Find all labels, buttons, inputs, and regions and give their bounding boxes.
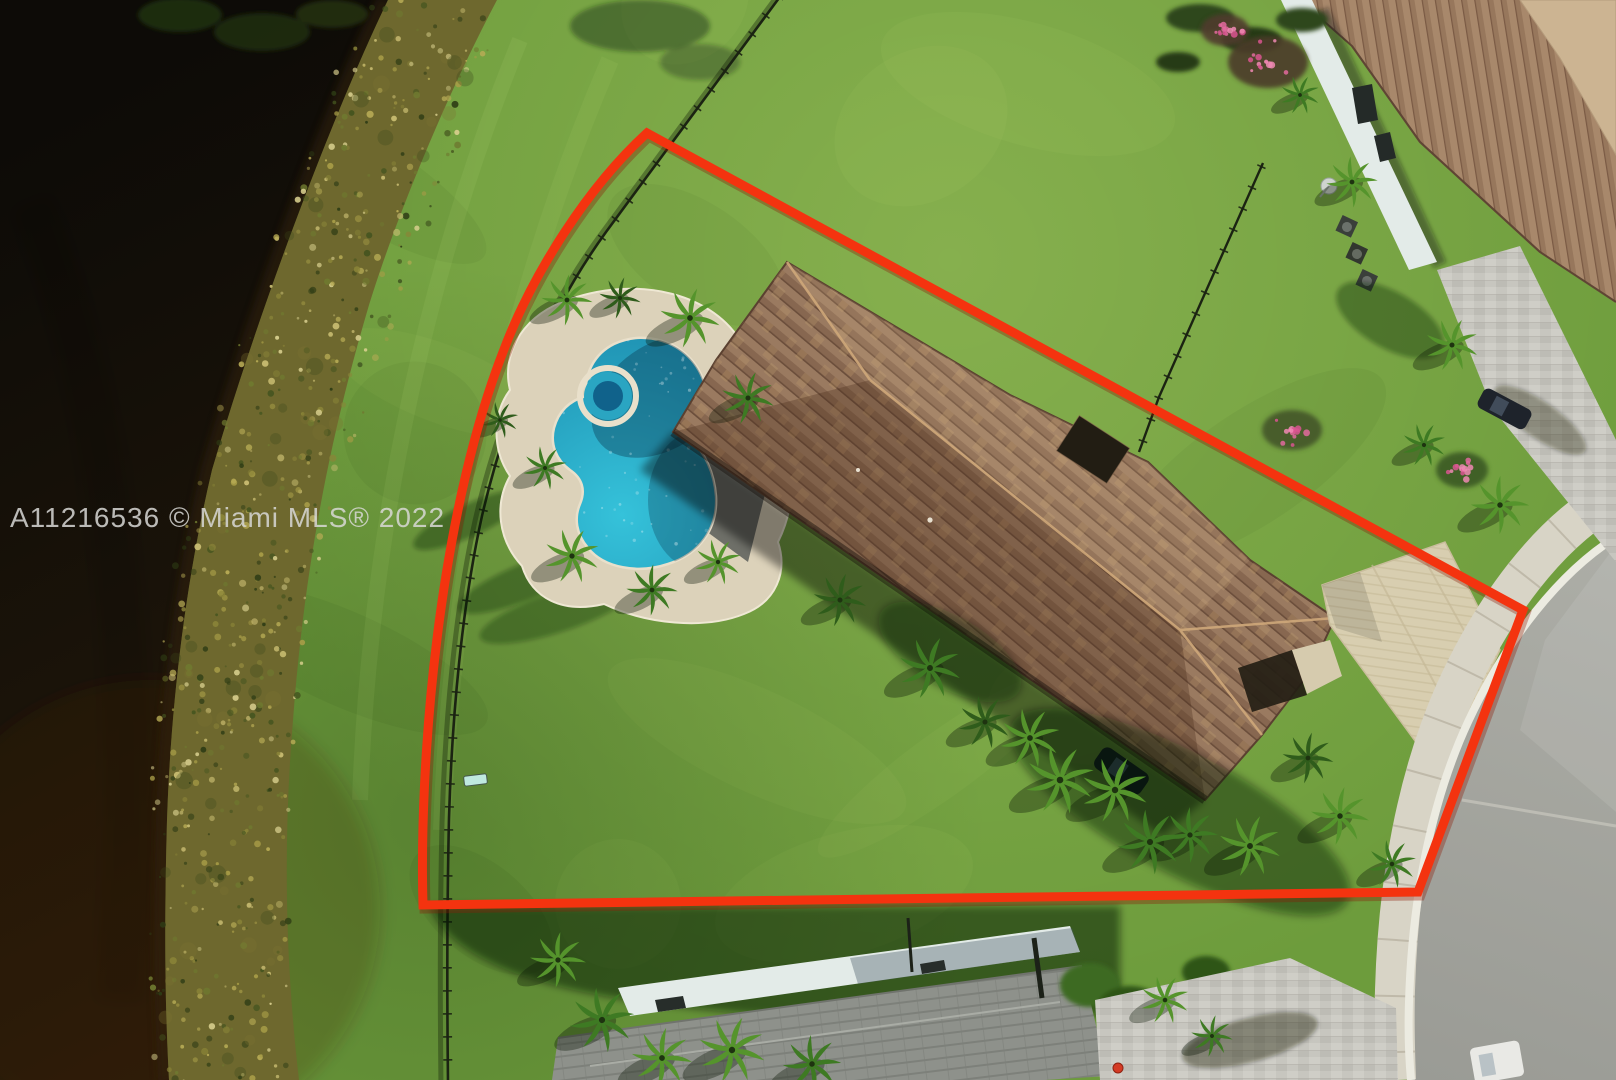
reed-speckle (241, 636, 246, 641)
reed-speckle (209, 544, 216, 551)
reed-speckle (327, 163, 333, 169)
reed-clump (234, 1067, 246, 1079)
reed-clump (180, 942, 197, 959)
reed-speckle (175, 1071, 178, 1074)
reed-speckle (342, 114, 348, 120)
reed-speckle (308, 475, 311, 478)
reed-speckle (230, 810, 233, 813)
reed-speckle (194, 543, 201, 550)
reed-speckle (150, 776, 155, 781)
reed-speckle (267, 973, 271, 977)
reed-speckle (225, 465, 227, 467)
reed-speckle (340, 125, 343, 128)
reed-speckle (392, 167, 397, 172)
reed-speckle (263, 351, 269, 357)
reed-speckle (274, 768, 279, 773)
reed-speckle (325, 354, 331, 360)
reed-speckle (398, 279, 402, 283)
water-sparkle (630, 522, 633, 525)
reed-speckle (150, 985, 156, 991)
reed-speckle (309, 244, 316, 251)
reed-speckle (181, 1017, 186, 1022)
reed-speckle (210, 570, 216, 576)
reed-speckle (191, 906, 198, 913)
reed-speckle (338, 380, 341, 383)
water-sparkle (661, 367, 663, 369)
reed-speckle (333, 398, 339, 404)
reed-speckle (257, 561, 261, 565)
reed-speckle (283, 345, 285, 347)
reed-speckle (286, 808, 290, 812)
reed-speckle (298, 455, 302, 459)
reed-speckle (247, 432, 252, 437)
reed-speckle (402, 202, 405, 205)
reed-speckle (193, 1057, 198, 1062)
reed-speckle (429, 205, 431, 207)
reed-speckle (251, 906, 253, 908)
reed-speckle (281, 477, 285, 481)
reed-speckle (276, 294, 281, 299)
reed-speckle (262, 592, 264, 594)
fence-post (454, 669, 463, 670)
fence-post (456, 646, 465, 647)
reed-speckle (396, 10, 403, 17)
water-sparkle (705, 529, 709, 533)
reed-speckle (474, 47, 479, 52)
reed-clump (250, 664, 263, 677)
reed-speckle (317, 557, 321, 561)
reed-speckle (180, 979, 185, 984)
reed-speckle (197, 674, 204, 681)
water-sparkle (682, 356, 685, 359)
water-sparkle (648, 489, 650, 491)
reed-speckle (209, 816, 215, 822)
reed-speckle (284, 577, 290, 583)
reed-clump (176, 772, 193, 789)
reed-speckle (232, 986, 237, 991)
water-sparkle (636, 491, 639, 494)
reed-speckle (426, 221, 432, 227)
reed-clump (248, 685, 261, 698)
flower-dot (1218, 32, 1222, 36)
reed-speckle (169, 674, 176, 681)
water-sparkle (665, 377, 668, 380)
reed-speckle (162, 989, 165, 992)
reed-speckle (332, 220, 335, 223)
reed-speckle (480, 51, 486, 57)
reed-speckle (357, 192, 363, 198)
reed-speckle (249, 381, 254, 386)
reed-speckle (231, 922, 237, 928)
reed-speckle (329, 144, 335, 150)
water-sparkle (623, 519, 625, 521)
reed-speckle (352, 330, 355, 333)
reed-clump (195, 873, 206, 884)
reed-speckle (157, 990, 159, 992)
reed-speckle (414, 226, 419, 231)
reed-speckle (229, 644, 232, 647)
reed-speckle (149, 933, 152, 936)
reed-speckle (235, 882, 241, 888)
reed-clump (300, 412, 312, 424)
reed-speckle (186, 536, 191, 541)
reed-speckle (317, 420, 320, 423)
reed-speckle (214, 723, 220, 729)
reed-speckle (426, 32, 431, 37)
reed-clump (273, 946, 283, 956)
reed-speckle (304, 620, 308, 624)
reed-speckle (317, 213, 321, 217)
reed-speckle (414, 171, 418, 175)
reed-speckle (199, 691, 205, 697)
reed-speckle (353, 68, 358, 73)
reed-speckle (354, 258, 357, 261)
reed-speckle (431, 44, 435, 48)
reed-clump (226, 681, 241, 696)
reed-speckle (408, 261, 412, 265)
reed-speckle (209, 777, 215, 783)
reed-speckle (258, 354, 261, 357)
reed-speckle (268, 720, 273, 725)
reed-speckle (304, 597, 307, 600)
reed-speckle (181, 607, 185, 611)
reed-speckle (276, 622, 280, 626)
reed-speckle (223, 582, 228, 587)
reed-speckle (194, 969, 198, 973)
reed-speckle (331, 359, 336, 364)
reed-speckle (266, 847, 270, 851)
reed-speckle (277, 454, 284, 461)
reed-speckle (213, 621, 219, 627)
reed-speckle (330, 388, 333, 391)
reed-speckle (296, 230, 300, 234)
reed-speckle (369, 5, 375, 11)
bench (463, 774, 487, 787)
reed-speckle (213, 762, 218, 767)
water-sparkle (649, 415, 651, 417)
reed-speckle (426, 66, 429, 69)
reed-speckle (334, 111, 339, 116)
reed-speckle (365, 269, 367, 271)
flower-dot (1214, 31, 1217, 34)
reed-speckle (267, 1048, 270, 1051)
reed-speckle (333, 70, 339, 76)
reed-speckle (295, 197, 301, 203)
reed-speckle (201, 860, 207, 866)
reed-speckle (245, 999, 252, 1006)
water-sparkle (683, 366, 686, 369)
reed-speckle (280, 375, 285, 380)
reed-speckle (364, 250, 371, 257)
reed-speckle (413, 155, 416, 158)
reed-clump (306, 358, 323, 375)
reed-clump (298, 346, 311, 359)
reed-clump (241, 353, 253, 365)
reed-speckle (390, 124, 392, 126)
fence-post (447, 761, 456, 762)
reed-speckle (421, 147, 424, 150)
reed-speckle (225, 665, 227, 667)
reed-speckle (438, 48, 444, 54)
reed-speckle (309, 157, 312, 160)
reed-speckle (214, 634, 221, 641)
fence-post (452, 692, 461, 693)
reed-speckle (381, 176, 385, 180)
flower-dot (1227, 28, 1233, 34)
reed-speckle (349, 110, 355, 116)
reed-speckle (341, 337, 346, 342)
water-sparkle (624, 472, 626, 474)
reed-speckle (406, 232, 412, 238)
reed-speckle (185, 1008, 190, 1013)
reed-speckle (281, 594, 285, 598)
reed-speckle (280, 486, 285, 491)
reed-speckle (270, 404, 276, 410)
reed-speckle (444, 130, 450, 136)
reed-speckle (256, 406, 260, 410)
reed-speckle (452, 101, 459, 108)
reed-speckle (393, 67, 397, 71)
reed-speckle (324, 279, 330, 285)
reed-speckle (271, 540, 277, 546)
reed-clump (184, 669, 193, 678)
reed-speckle (239, 463, 244, 468)
reed-speckle (334, 181, 339, 186)
reed-speckle (306, 449, 312, 455)
reed-speckle (303, 195, 309, 201)
reed-clump (278, 403, 287, 412)
water-sparkle (651, 523, 653, 525)
reed-speckle (305, 455, 311, 461)
reed-speckle (250, 704, 257, 711)
reed-speckle (285, 252, 288, 255)
roof-vent (856, 468, 860, 472)
water-sparkle (688, 389, 691, 392)
reed-speckle (326, 175, 332, 181)
reed-clump (456, 69, 473, 86)
flower-dot (1465, 458, 1471, 464)
fire-hydrant (1113, 1063, 1123, 1073)
reed-speckle (262, 623, 266, 627)
reed-speckle (306, 259, 310, 263)
reed-speckle (297, 317, 300, 320)
reed-speckle (343, 429, 346, 432)
reed-speckle (160, 922, 166, 928)
reed-speckle (222, 1064, 224, 1066)
flower-dot (1289, 429, 1293, 433)
reed-speckle (195, 959, 197, 961)
reed-speckle (374, 254, 381, 261)
reed-speckle (289, 498, 291, 500)
reed-speckle (249, 825, 253, 829)
reed-speckle (281, 835, 285, 839)
reed-speckle (180, 1045, 184, 1049)
reed-speckle (268, 629, 273, 634)
reed-speckle (233, 786, 239, 792)
reed-speckle (196, 731, 199, 734)
reed-speckle (330, 282, 334, 286)
reed-speckle (396, 36, 401, 41)
flower-dot (1280, 441, 1285, 446)
reed-speckle (460, 8, 465, 13)
reed-speckle (363, 239, 370, 246)
water-sparkle (645, 352, 647, 354)
reed-speckle (295, 487, 301, 493)
reed-speckle (172, 1000, 176, 1004)
reed-speckle (288, 597, 292, 601)
reed-speckle (225, 570, 229, 574)
reed-speckle (299, 368, 303, 372)
reed-speckle (300, 640, 306, 646)
flower-dot (1255, 54, 1261, 60)
reed-speckle (175, 853, 177, 855)
reed-speckle (277, 794, 280, 797)
reed-speckle (269, 736, 274, 741)
water-sparkle (611, 436, 614, 439)
reed-speckle (201, 747, 207, 753)
reed-speckle (197, 988, 203, 994)
reed-speckle (172, 562, 179, 569)
reed-speckle (198, 947, 202, 951)
reed-speckle (474, 56, 477, 59)
reed-speckle (262, 994, 265, 997)
reed-speckle (309, 151, 314, 156)
reed-speckle (347, 436, 353, 442)
reed-speckle (279, 672, 282, 675)
reed-clump (205, 798, 216, 809)
reed-speckle (393, 107, 395, 109)
reed-speckle (170, 750, 176, 756)
reed-speckle (310, 287, 317, 294)
reed-speckle (452, 18, 454, 20)
reed-speckle (248, 876, 253, 881)
reed-speckle (313, 380, 315, 382)
reed-speckle (203, 646, 208, 651)
reed-speckle (254, 974, 258, 978)
reed-clump (170, 653, 181, 664)
reed-speckle (310, 231, 316, 237)
reed-speckle (157, 716, 163, 722)
reed-speckle (437, 181, 440, 184)
flower-dot (1462, 466, 1468, 472)
reed-speckle (435, 114, 437, 116)
reed-speckle (170, 907, 172, 909)
reed-speckle (277, 752, 281, 756)
reed-speckle (176, 1003, 179, 1006)
reed-speckle (304, 320, 307, 323)
reed-speckle (203, 988, 210, 995)
flower-dot (1284, 429, 1289, 434)
reed-speckle (268, 788, 272, 792)
water-sparkle (693, 378, 695, 380)
reed-speckle (259, 738, 265, 744)
reed-speckle (410, 181, 412, 183)
reed-speckle (275, 336, 279, 340)
reed-speckle (217, 452, 222, 457)
reed-speckle (403, 108, 408, 113)
reed-speckle (263, 329, 268, 334)
reed-speckle (365, 121, 368, 124)
reed-speckle (382, 6, 388, 12)
fence-post (448, 738, 457, 739)
reed-speckle (172, 826, 178, 832)
reed-speckle (416, 29, 419, 32)
reed-speckle (280, 292, 283, 295)
reed-speckle (338, 121, 341, 124)
reed-speckle (185, 635, 190, 640)
reed-speckle (316, 271, 320, 275)
water-sparkle (635, 478, 638, 481)
reed-speckle (234, 670, 240, 676)
reed-speckle (232, 931, 234, 933)
roof-vent (927, 517, 932, 522)
reed-speckle (262, 1011, 269, 1018)
water-sparkle (633, 368, 636, 371)
reed-speckle (362, 278, 369, 285)
reed-speckle (273, 350, 277, 354)
reed-speckle (348, 92, 353, 97)
reed-speckle (385, 337, 389, 341)
reed-clump (378, 130, 394, 146)
reed-speckle (274, 646, 280, 652)
flower-dot (1258, 40, 1262, 44)
reed-speckle (269, 316, 273, 320)
reed-speckle (398, 244, 400, 246)
reed-speckle (273, 234, 279, 240)
reed-speckle (259, 552, 264, 557)
reed-speckle (217, 405, 224, 412)
reed-speckle (341, 145, 347, 151)
reed-speckle (336, 317, 341, 322)
flower-dot (1218, 23, 1222, 27)
water-sparkle (608, 487, 610, 489)
reed-speckle (245, 927, 247, 929)
reed-speckle (223, 1026, 230, 1033)
reed-speckle (392, 95, 395, 98)
reed-speckle (268, 584, 272, 588)
reed-speckle (178, 601, 185, 608)
reed-speckle (192, 710, 196, 714)
reed-speckle (221, 731, 225, 735)
flower-dot (1294, 428, 1301, 435)
reed-speckle (319, 452, 323, 456)
reed-speckle (354, 266, 360, 272)
reed-speckle (190, 569, 196, 575)
reed-speckle (182, 545, 186, 549)
reed-speckle (160, 654, 167, 661)
reed-speckle (432, 181, 437, 186)
reed-speckle (355, 230, 361, 236)
reed-speckle (180, 811, 184, 815)
reed-clump (329, 416, 343, 430)
reed-speckle (181, 574, 185, 578)
reed-speckle (225, 427, 228, 430)
reed-speckle (238, 344, 240, 346)
reed-speckle (397, 184, 399, 186)
reed-speckle (173, 937, 178, 942)
reed-speckle (307, 167, 310, 170)
reed-speckle (208, 750, 214, 756)
reed-speckle (355, 215, 362, 222)
reed-speckle (216, 862, 219, 865)
flower-dot (1248, 57, 1253, 62)
reed-speckle (268, 390, 275, 397)
reed-speckle (212, 484, 215, 487)
flower-dot (1222, 31, 1226, 35)
reed-speckle (181, 885, 184, 888)
reed-speckle (316, 188, 322, 194)
water-sparkle (619, 503, 622, 506)
